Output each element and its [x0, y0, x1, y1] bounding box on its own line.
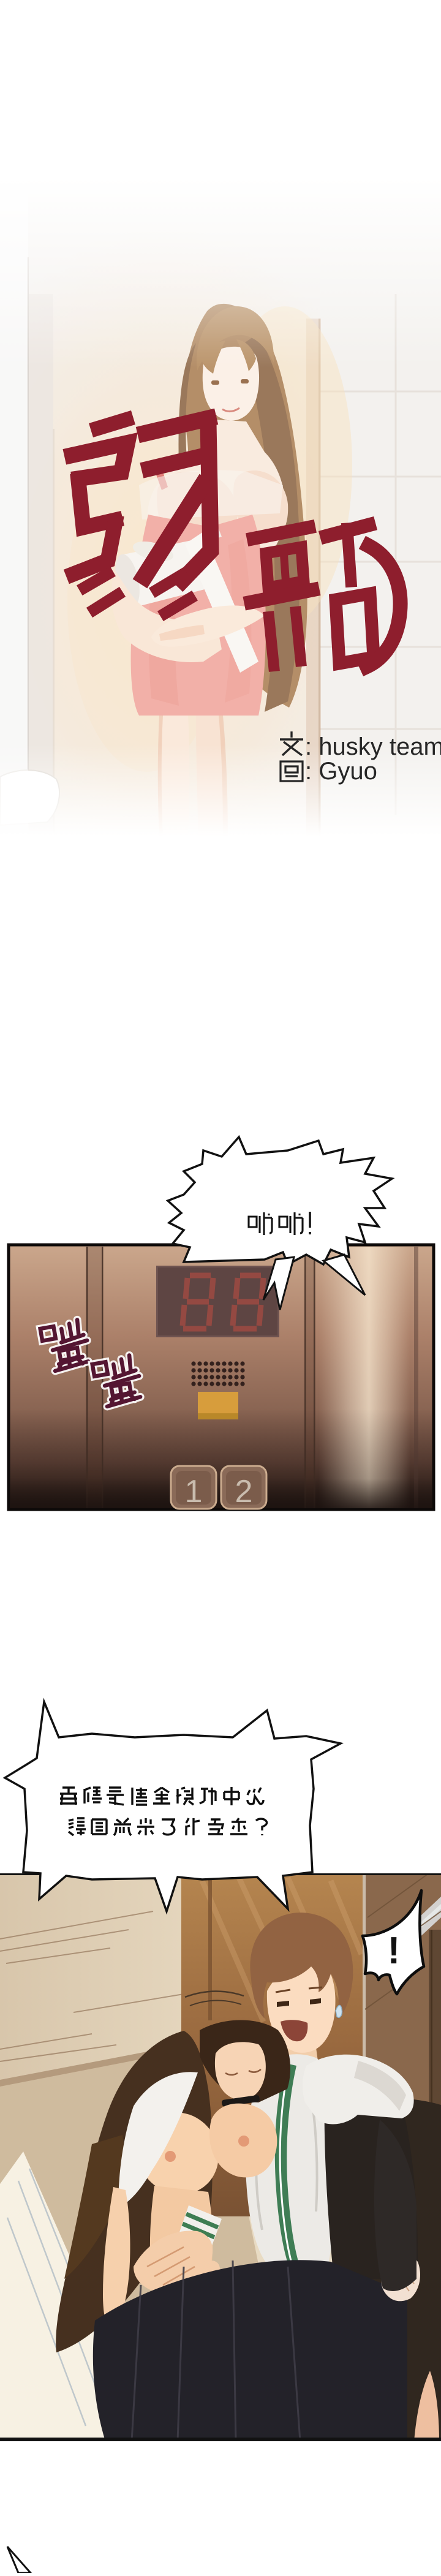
svg-text:1: 1 [185, 1474, 203, 1509]
svg-text:: Gyuo: : Gyuo [305, 758, 377, 785]
svg-text:2: 2 [235, 1474, 253, 1509]
svg-text:!: ! [388, 1930, 401, 1972]
svg-text:: husky team: : husky team [305, 733, 441, 760]
